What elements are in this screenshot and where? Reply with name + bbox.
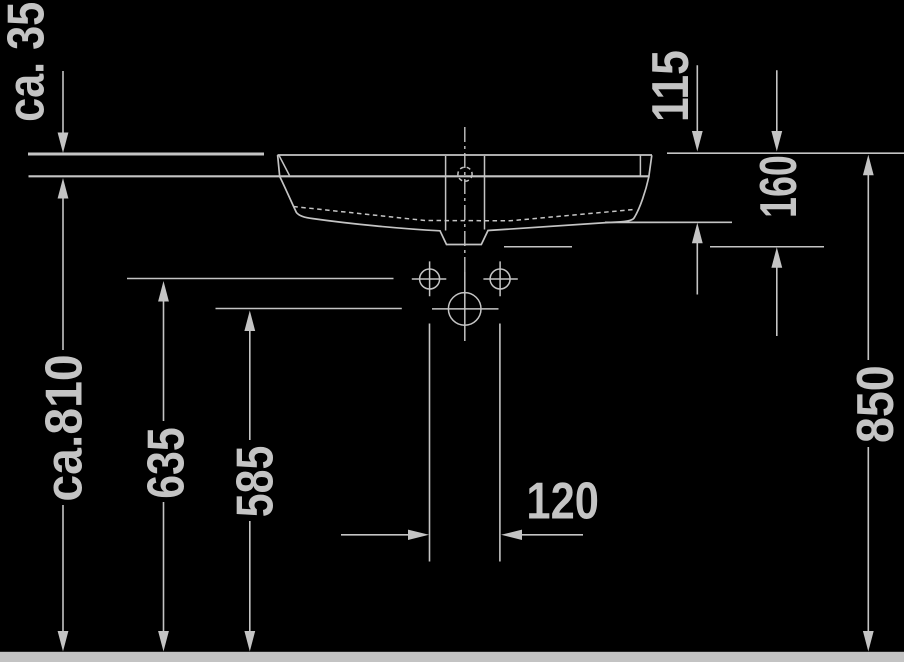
svg-text:635: 635 (138, 427, 196, 498)
svg-text:ca.810: ca.810 (35, 354, 93, 501)
svg-text:115: 115 (642, 50, 700, 122)
svg-text:850: 850 (847, 365, 904, 443)
svg-text:160: 160 (749, 155, 807, 218)
svg-text:585: 585 (227, 446, 285, 517)
svg-text:120: 120 (526, 473, 599, 531)
svg-text:ca. 35: ca. 35 (0, 2, 55, 122)
